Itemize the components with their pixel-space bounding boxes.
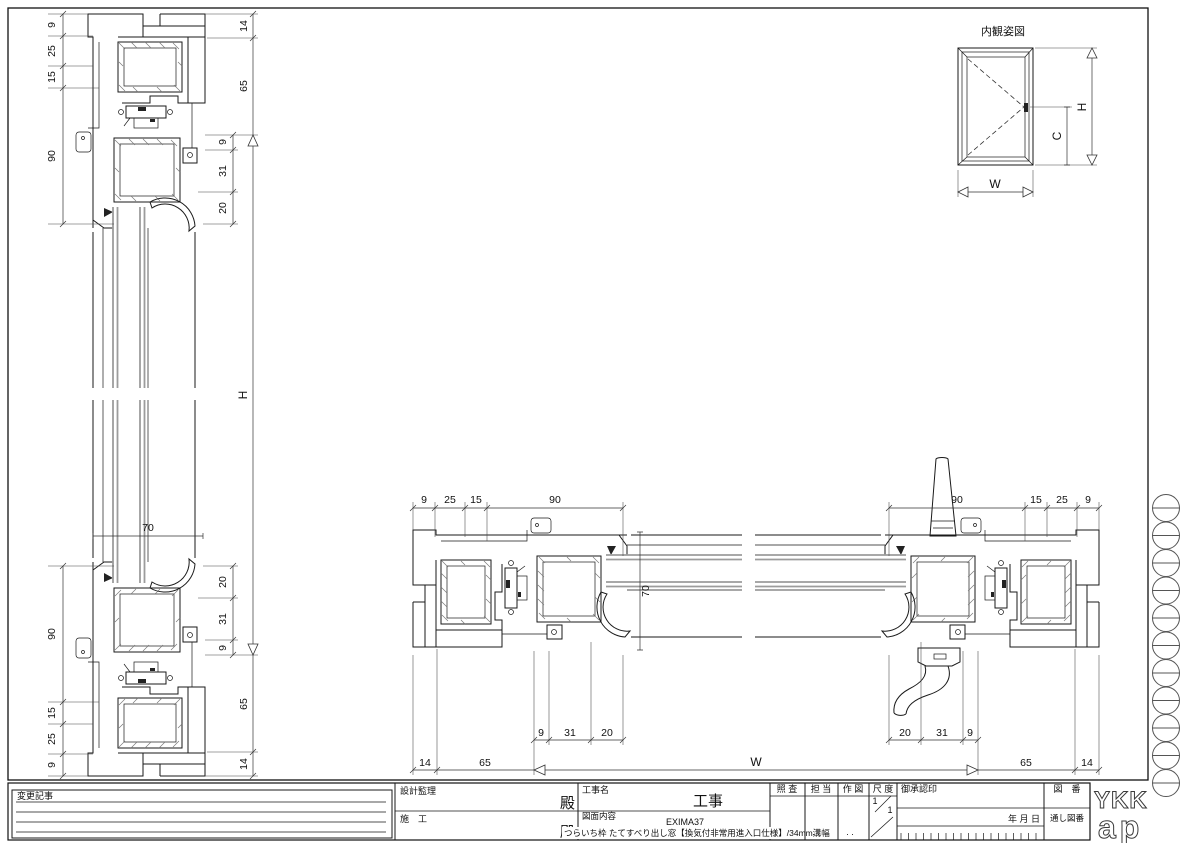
- handle-mark: [1024, 103, 1028, 112]
- vertical-section: 9 25 15 90 90 15 25 9 14 65 H 65 14: [46, 11, 258, 779]
- arrow-up-icon: [248, 135, 258, 146]
- dim-label: 15: [46, 71, 58, 83]
- glass-dim-label: 70: [142, 522, 154, 534]
- dim-label: 31: [936, 727, 948, 739]
- arrow-right-icon: [967, 765, 978, 775]
- drawing-content-label: 図面内容: [582, 811, 617, 821]
- binding-holes: [1153, 495, 1180, 797]
- elevation-handle-height-label: C: [1050, 131, 1064, 140]
- dono-top: 殿: [560, 795, 575, 812]
- project-name-label: 工事名: [582, 784, 609, 795]
- logo-ap: ap: [1098, 809, 1143, 843]
- dim-label: 25: [1056, 494, 1068, 506]
- vertical-right-dims: 14 65 H 65 14: [205, 11, 258, 779]
- scale-denominator: 1: [887, 805, 892, 815]
- dim-label: 9: [46, 762, 58, 768]
- elevation-frame-mid: [962, 52, 1029, 161]
- glass-dim-label: 70: [640, 585, 652, 597]
- elevation-frame-outer: [958, 48, 1033, 165]
- sill-section: [76, 559, 205, 776]
- elevation-frame-inner: [967, 57, 1025, 157]
- width-dim-label: W: [750, 755, 762, 769]
- design-supervision-label: 設計監理: [400, 785, 436, 796]
- dim-label: 9: [217, 139, 229, 145]
- dim-label: 14: [419, 757, 431, 769]
- change-notes-label: 変更記事: [17, 790, 53, 801]
- in-charge-label: 担 当: [811, 783, 832, 794]
- change-notes-lines: [16, 802, 386, 832]
- elevation-width-label: W: [989, 177, 1001, 191]
- operator-handle: [894, 648, 960, 715]
- ykk-ap-logo: YKK ap: [1094, 787, 1148, 843]
- elevation-height-label: H: [1075, 103, 1089, 112]
- dim-label: 90: [46, 150, 58, 162]
- dim-label: 15: [46, 707, 58, 719]
- arrow-down-icon: [248, 644, 258, 655]
- dim-label: 15: [470, 494, 482, 506]
- dim-label: 31: [564, 727, 576, 739]
- drawing-sheet: 9 25 15 90 90 15 25 9 14 65 H 65 14: [0, 0, 1181, 843]
- dim-label: 15: [1030, 494, 1042, 506]
- casement-opening-symbol: [968, 59, 1024, 155]
- title-block: 変更記事 設計監理 殿 施 工 殿 工事名 工事 図面内容 EXIMA37 つら…: [8, 783, 1090, 841]
- dim-label: 9: [421, 494, 427, 506]
- product-series: EXIMA37: [666, 817, 704, 827]
- dim-label: 25: [444, 494, 456, 506]
- dim-label: 9: [1085, 494, 1091, 506]
- scale-numerator: 1: [872, 796, 877, 806]
- dim-label: 9: [217, 645, 229, 651]
- dim-label: 90: [549, 494, 561, 506]
- dim-label: 14: [1081, 757, 1093, 769]
- vertical-inner-dims: 9 31 20 20 31 9: [198, 132, 238, 658]
- drawing-title: つらいち枠 たてすべり出し窓【換気付非常用進入口仕様】/34mm溝幅: [564, 828, 830, 838]
- dim-label: 20: [601, 727, 613, 739]
- page-border: [8, 8, 1148, 780]
- dim-label: 31: [217, 613, 229, 625]
- check-label: 照 査: [777, 783, 798, 794]
- horizontal-top-dims: 9 25 15 90 90 15 25 9: [410, 494, 1102, 556]
- dim-label: 90: [951, 494, 963, 506]
- project-suffix: 工事: [693, 793, 723, 810]
- drawing-canvas: 9 25 15 90 90 15 25 9 14 65 H 65 14: [0, 0, 1181, 843]
- dim-label: 14: [238, 20, 250, 32]
- head-section: [76, 14, 205, 231]
- dim-label: 65: [1020, 757, 1032, 769]
- dim-label: 20: [899, 727, 911, 739]
- horizontal-section: 9 25 15 90 90 15 25 9 9 31 20 20 31 9: [410, 458, 1102, 776]
- dim-label: 25: [46, 45, 58, 57]
- approval-ticks: [901, 833, 1036, 840]
- dim-label: 25: [46, 733, 58, 745]
- dim-label: 9: [46, 22, 58, 28]
- right-jamb-section: [882, 518, 1099, 647]
- approval-label: 御承認印: [901, 783, 937, 794]
- change-notes-box: [12, 790, 392, 838]
- date-label: 年 月 日: [1008, 813, 1040, 824]
- arrow-left-icon: [534, 765, 545, 775]
- height-dim-label: H: [236, 391, 250, 400]
- drawing-no-label: 図 番: [1053, 783, 1080, 794]
- construction-label: 施 工: [400, 813, 427, 824]
- dim-label: 9: [967, 727, 973, 739]
- left-jamb-section: [413, 518, 630, 647]
- dim-label: 20: [217, 202, 229, 214]
- dim-label: 14: [238, 758, 250, 770]
- scale-label: 尺 度: [873, 783, 894, 794]
- vertical-left-dims: 9 25 15 90 90 15 25 9: [46, 11, 114, 779]
- elevation-view: 内観姿図 W H C: [958, 24, 1097, 197]
- horizontal-bottom-dims: 14 65 W 65 14: [410, 649, 1102, 775]
- dim-label: 65: [238, 80, 250, 92]
- dim-label: 90: [46, 628, 58, 640]
- dim-label: 9: [538, 727, 544, 739]
- drafting-dots: . .: [846, 827, 854, 837]
- elevation-title: 内観姿図: [981, 24, 1025, 38]
- in-charge-dots: . .: [812, 827, 820, 837]
- dim-label: 31: [217, 165, 229, 177]
- dim-label: 20: [217, 576, 229, 588]
- dim-label: 65: [479, 757, 491, 769]
- drafting-label: 作 図: [843, 783, 864, 794]
- dim-label: 65: [238, 698, 250, 710]
- serial-no-label: 通し図番: [1050, 813, 1085, 823]
- horizontal-glass-dim: 70: [637, 532, 652, 650]
